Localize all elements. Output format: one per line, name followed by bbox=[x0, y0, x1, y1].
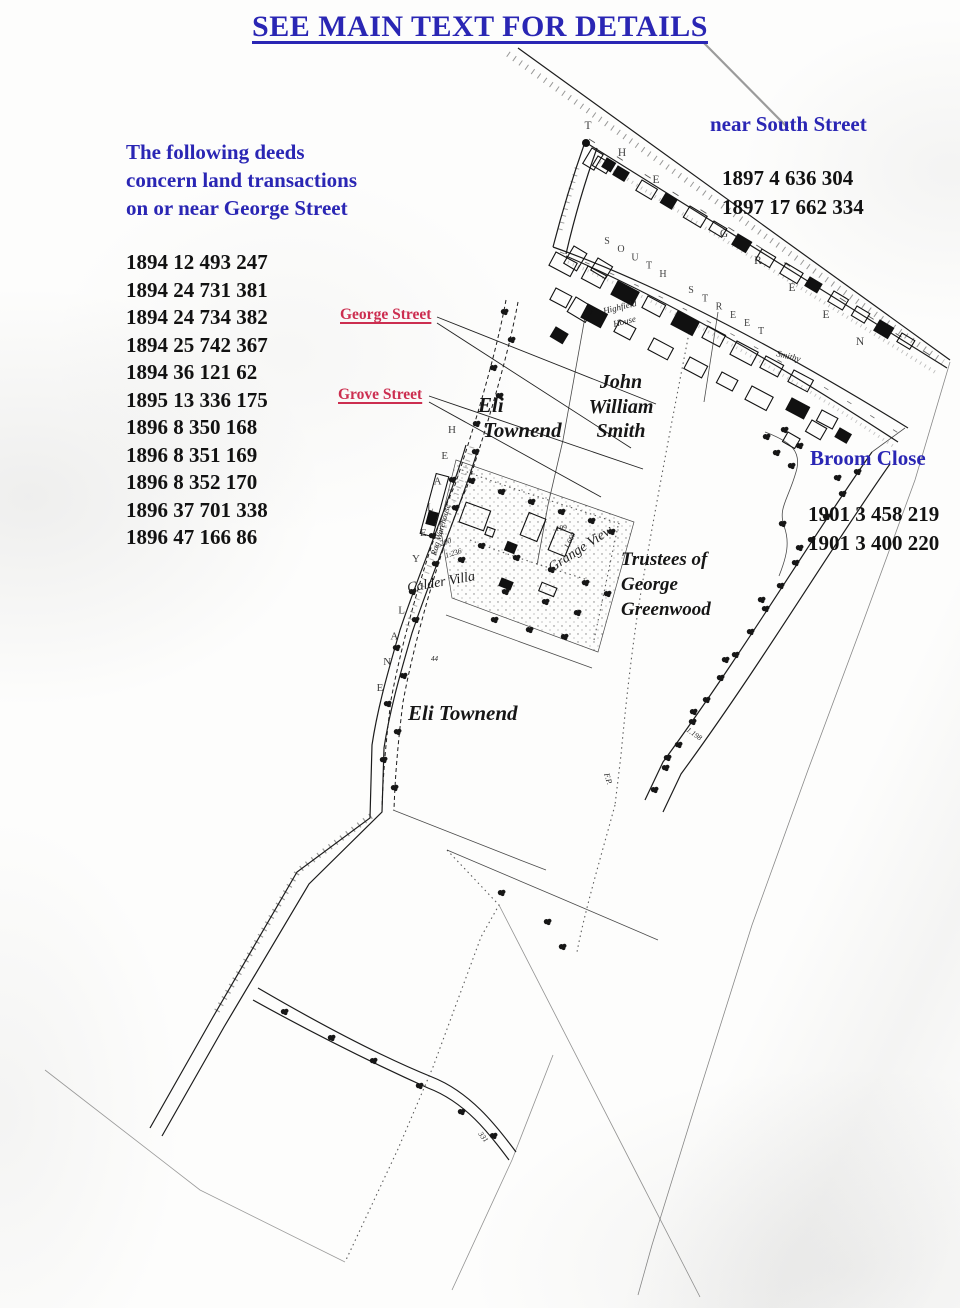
intro-note: The following deeds concern land transac… bbox=[126, 138, 357, 222]
smithy-label: Smithy bbox=[776, 348, 802, 364]
parcel-number-331: 331 bbox=[476, 1129, 491, 1144]
owner-line: Trustees of bbox=[621, 547, 711, 572]
south-street-heading: near South Street bbox=[710, 110, 867, 138]
deed-entry: 1896 8 351 169 bbox=[126, 442, 268, 470]
deed-entry: 1901 3 458 219 bbox=[808, 500, 939, 529]
owner-trustees-of-george-greenwood: Trustees of George Greenwood bbox=[621, 547, 711, 622]
owner-line: Eli bbox=[478, 393, 562, 418]
broom-close-heading: Broom Close bbox=[810, 444, 926, 472]
owner-eli-townend-upper: Eli Townend bbox=[478, 393, 562, 443]
parcel-area-1198: 1.198 bbox=[685, 725, 704, 742]
map-trees bbox=[281, 309, 862, 1139]
grove-street-callout: Grove Street bbox=[338, 386, 422, 404]
deed-entry: 1894 24 734 382 bbox=[126, 304, 268, 332]
parcel-number-199: 199 bbox=[555, 522, 568, 533]
owner-line: Townend bbox=[483, 418, 562, 443]
footpath-label: F.P. bbox=[602, 771, 614, 786]
owner-line: John bbox=[578, 370, 664, 395]
intro-note-line2: concern land transactions bbox=[126, 166, 357, 194]
george-street-deed-list: 1894 12 493 247 1894 24 731 381 1894 24 … bbox=[126, 249, 268, 552]
deed-entry: 1897 4 636 304 bbox=[722, 164, 864, 193]
owner-line: Smith bbox=[578, 419, 664, 444]
deed-entry: 1894 25 742 367 bbox=[126, 332, 268, 360]
broom-close-deed-list: 1901 3 458 219 1901 3 400 220 bbox=[808, 500, 939, 557]
deed-entry: 1895 13 336 175 bbox=[126, 387, 268, 415]
intro-note-line3: on or near George Street bbox=[126, 194, 357, 222]
parcel-number-44: 44 bbox=[431, 655, 439, 663]
owner-john-william-smith: John William Smith bbox=[578, 370, 664, 444]
intro-note-line1: The following deeds bbox=[126, 138, 357, 166]
owner-line: William bbox=[578, 395, 664, 420]
owner-line: George bbox=[621, 572, 711, 597]
deed-entry: 1896 37 701 338 bbox=[126, 497, 268, 525]
deed-entry: 1896 8 350 168 bbox=[126, 414, 268, 442]
deed-entry: 1894 36 121 62 bbox=[126, 359, 268, 387]
deed-entry: 1894 12 493 247 bbox=[126, 249, 268, 277]
deed-entry: 1894 24 731 381 bbox=[126, 277, 268, 305]
page-title: SEE MAIN TEXT FOR DETAILS bbox=[0, 10, 960, 44]
owner-line: Greenwood bbox=[621, 597, 711, 622]
scanned-map-page: Highfield House Smithy Rag Warehouse Cal… bbox=[0, 0, 960, 1308]
deed-entry: 1897 17 662 334 bbox=[722, 193, 864, 222]
deed-entry: 1896 8 352 170 bbox=[126, 469, 268, 497]
south-street-deed-list: 1897 4 636 304 1897 17 662 334 bbox=[722, 164, 864, 221]
george-street-callout: George Street bbox=[340, 306, 431, 324]
deed-entry: 1901 3 400 220 bbox=[808, 529, 939, 558]
owner-eli-townend-lower: Eli Townend bbox=[408, 701, 518, 726]
deed-entry: 1896 47 166 86 bbox=[126, 524, 268, 552]
